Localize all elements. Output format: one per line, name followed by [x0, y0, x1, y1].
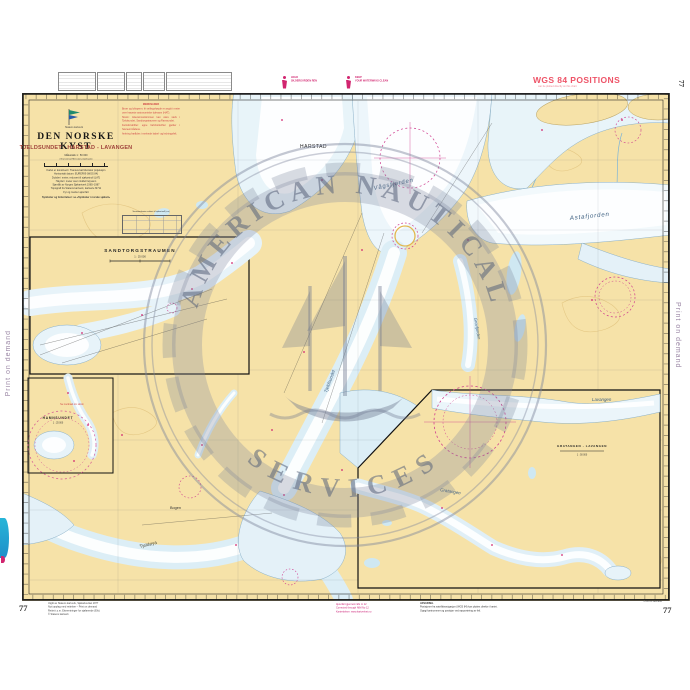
slogan-en-line1: KEEP	[355, 76, 362, 79]
inset2-scale: 1 : 25 000	[53, 423, 64, 425]
place-label: Lavangen	[592, 397, 612, 402]
print-on-demand-label-right: Print on demand	[674, 302, 681, 368]
chart-number-bottom-right: 77	[663, 605, 672, 615]
slogan-english: KEEP YOUR WATERWAYS CLEAN	[355, 76, 420, 83]
inset3-scale: 1 : 50 000	[577, 455, 588, 457]
slogan-en-line2: YOUR WATERWAYS CLEAN	[355, 80, 388, 83]
edge-flag-icon	[1, 556, 5, 563]
slogan-no-line2: SKJÆRGÅRDEN REN	[291, 80, 317, 83]
inset1-title: SANDTORGSTRAUMEN	[104, 248, 175, 253]
chart-title: TJELDSUNDET - HARSTAD - LAVANGEN	[16, 145, 136, 151]
title-scale-bar	[44, 163, 108, 167]
slogan-norwegian: HOLD SKJÆRGÅRDEN REN	[291, 76, 351, 83]
inset2-note: Se merknad om strøm	[60, 403, 84, 406]
footer-imprint: Utgitt av Statens kartverk, Sjøkartverke…	[48, 602, 168, 617]
footer-right-note: Print on demand	[612, 600, 662, 604]
agency-name: Statens kartverk	[44, 126, 104, 130]
chart-number-top-right: 77	[677, 80, 685, 87]
product-image-canvas: { "edge": { "left": "Print on demand", "…	[0, 0, 690, 690]
inset3-title: GRATANGEN - LAVANGEN	[557, 444, 607, 448]
red-notes-column: MERKNADER Broer og luftspenn: fri seilin…	[122, 103, 180, 136]
keep-clean-icon	[345, 76, 352, 89]
title-info-lines: Kartet er konstruert i Transversal Merca…	[16, 169, 136, 200]
edge-flag-icon	[0, 518, 9, 558]
chart-scale: Målestokk 1 : 50 000 (Transversal Mercat…	[16, 154, 136, 161]
print-on-demand-label-left: Print on demand	[5, 330, 12, 396]
footer-warning: ADVARSEL Posisjoner fra satellittnavigas…	[420, 602, 590, 613]
tide-table-title: Vannstandsnivå relatert til sjøkartnull …	[122, 210, 180, 213]
place-label: Bogen	[170, 506, 181, 510]
footer-corrections: Ajourført gjennom Efs nr 12 Corrected th…	[336, 603, 416, 614]
inset1-scale: 1 : 25 000	[134, 255, 146, 259]
kartverket-logo-icon	[66, 109, 82, 125]
correction-table-box	[143, 72, 165, 91]
inset-hamnsundet: Se merknad om strøm HAMNSUNDET 1 : 25 00…	[28, 378, 113, 473]
chart-number-bottom-left: 77	[19, 603, 28, 613]
correction-table-box	[97, 72, 125, 91]
keep-clean-icon	[281, 76, 288, 89]
wgs84-positions-title: WGS 84 POSITIONS	[533, 75, 620, 85]
correction-table-box	[166, 72, 232, 91]
correction-table-box	[58, 72, 96, 91]
inset2-title: HAMNSUNDET	[43, 416, 74, 420]
wgs84-positions-subtitle: can be plotted directly on this chart	[538, 85, 628, 89]
tide-table	[122, 215, 182, 234]
correction-table-box	[126, 72, 142, 91]
